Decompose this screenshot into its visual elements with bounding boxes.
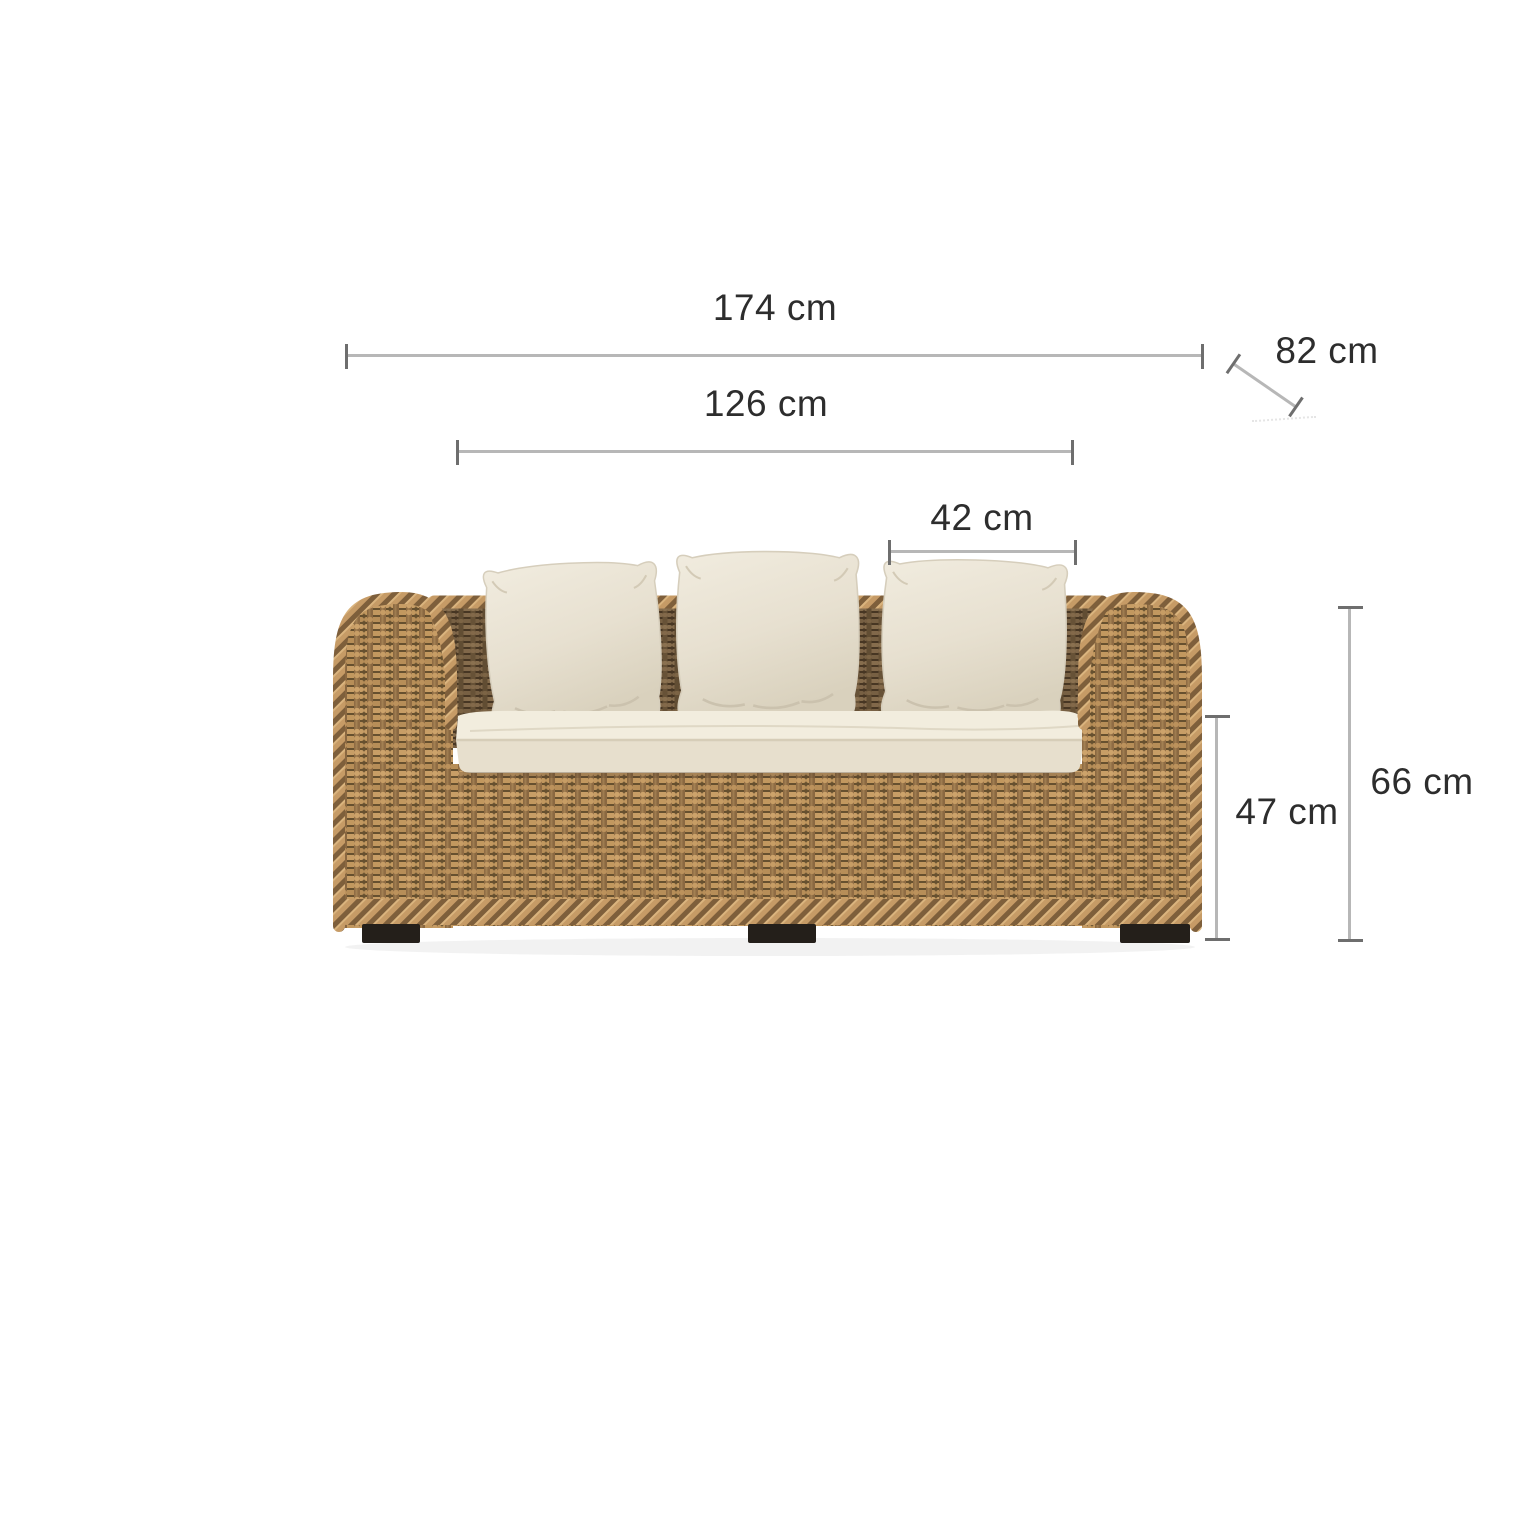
- dimension-label-seat-width: 126 cm: [704, 383, 828, 425]
- dimension-tick: [345, 344, 348, 369]
- dimension-tick: [456, 440, 459, 465]
- dimension-label-depth: 82 cm: [1275, 330, 1378, 372]
- dimension-line: [1232, 362, 1297, 408]
- dimension-line: [1348, 608, 1351, 942]
- dimension-tick: [1288, 397, 1304, 418]
- sofa-bottom-rail: [339, 899, 1196, 925]
- back-cushion-right: [880, 558, 1068, 730]
- sofa-arm-left: [337, 596, 453, 928]
- dimension-line: [458, 450, 1074, 453]
- sofa-arm-right: [1082, 596, 1198, 928]
- dimension-tick: [1201, 344, 1204, 369]
- dimension-tick: [1226, 353, 1242, 374]
- dimension-diagram: 174 cm 126 cm 42 cm 82 cm 66 cm 47: [0, 0, 1535, 1535]
- dimension-label-total-width: 174 cm: [713, 287, 837, 329]
- dimension-label-total-height: 66 cm: [1370, 761, 1473, 803]
- sofa-illustration: [320, 530, 1220, 980]
- back-cushion-left: [483, 559, 665, 735]
- dimension-tick: [1338, 939, 1363, 942]
- dimension-tick: [1338, 606, 1363, 609]
- seat-cushion: [456, 711, 1084, 778]
- sofa-feet: [362, 924, 1190, 943]
- dimension-label-seat-height: 47 cm: [1235, 791, 1338, 833]
- back-cushion-center: [677, 552, 859, 725]
- dimension-tick: [1071, 440, 1074, 465]
- dimension-line-diagonal: [1232, 362, 1297, 408]
- faint-guide-mark: [1252, 416, 1316, 422]
- dimension-line: [347, 354, 1203, 357]
